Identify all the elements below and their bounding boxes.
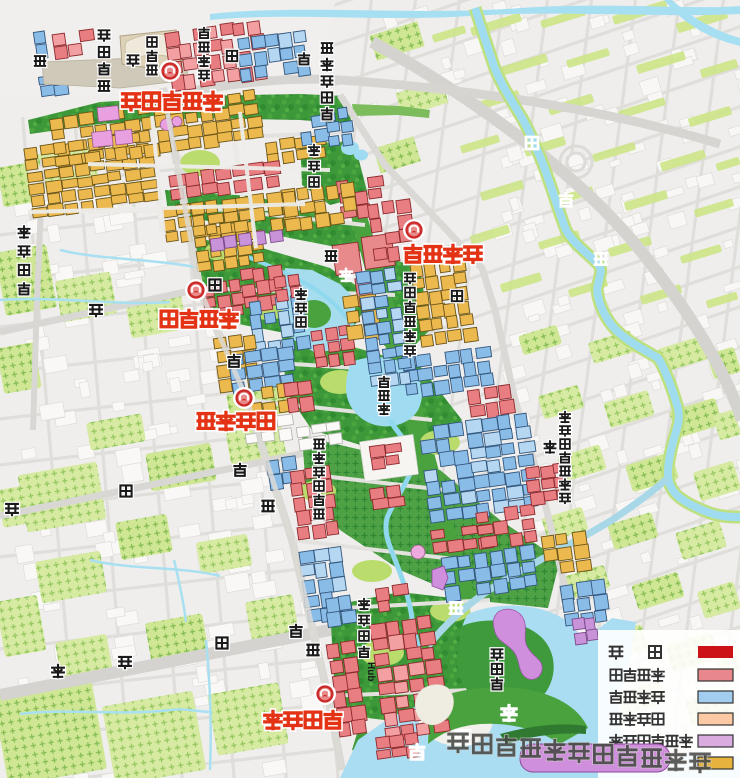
svg-text:Hub: Hub <box>365 662 376 681</box>
